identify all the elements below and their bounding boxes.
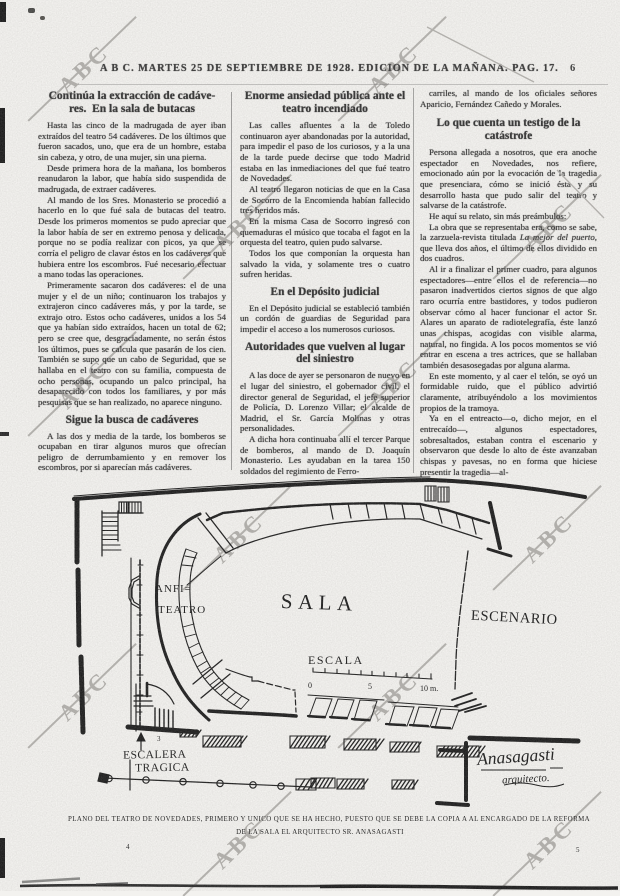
svg-text:ESCALERA: ESCALERA <box>123 749 187 762</box>
svg-text:ANFI=: ANFI= <box>155 583 192 595</box>
svg-text:0: 0 <box>308 681 312 690</box>
svg-text:PLANO DEL TEATRO DE NOVEDADES,: PLANO DEL TEATRO DE NOVEDADES, PRIMERO Y… <box>68 816 590 823</box>
svg-text:5: 5 <box>368 682 372 691</box>
svg-text:5: 5 <box>576 846 580 854</box>
svg-text:TEATRO: TEATRO <box>158 604 206 616</box>
svg-text:TRAGICA: TRAGICA <box>135 762 190 775</box>
svg-text:ESCALA: ESCALA <box>308 653 364 667</box>
svg-text:Anasagasti: Anasagasti <box>475 744 555 769</box>
svg-text:SALA: SALA <box>280 589 358 616</box>
svg-text:10 m.: 10 m. <box>420 684 438 693</box>
svg-text:3: 3 <box>157 735 161 743</box>
svg-text:ESCENARIO: ESCENARIO <box>471 608 558 629</box>
svg-text:4: 4 <box>126 843 130 851</box>
svg-text:DE LA SALA EL ARQUITECTO SR. A: DE LA SALA EL ARQUITECTO SR. ANASAGASTI <box>236 829 404 836</box>
